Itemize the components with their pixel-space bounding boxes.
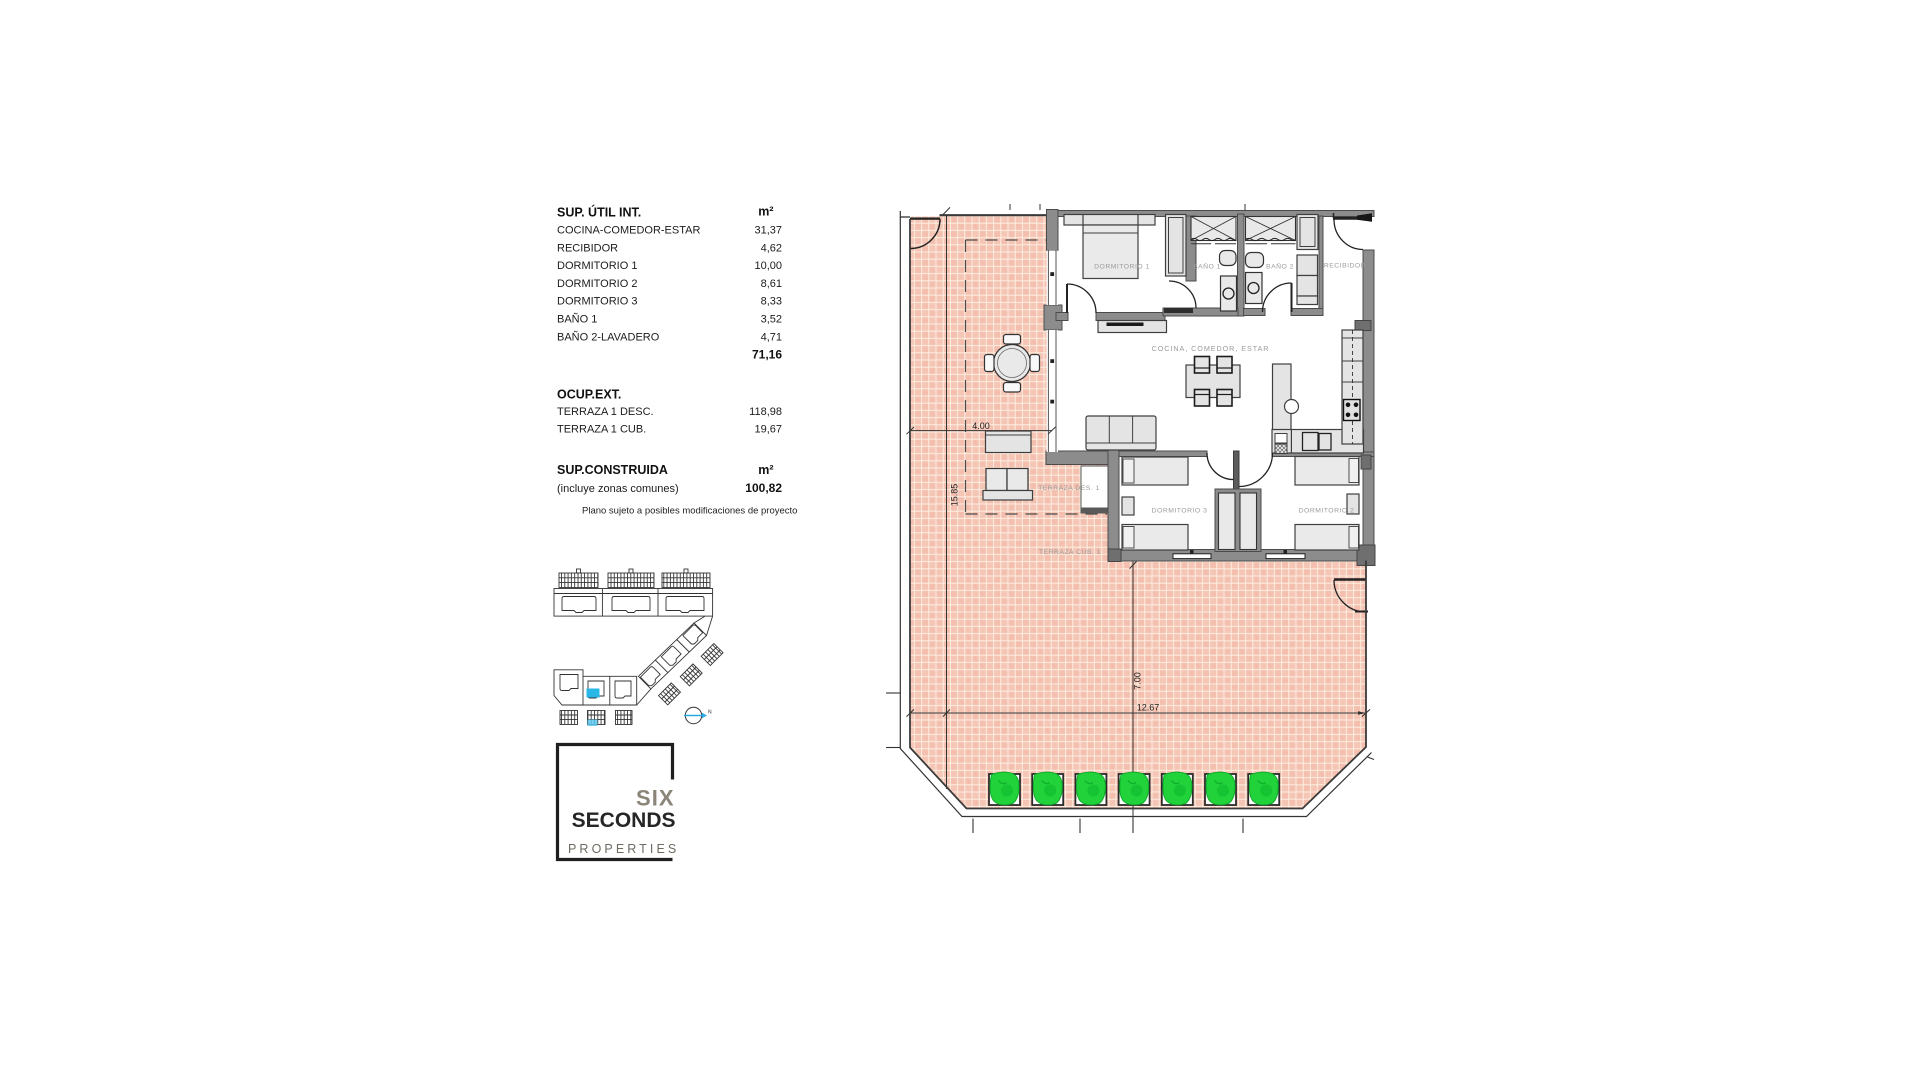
- svg-text:TERRAZA 1 CUB.: TERRAZA 1 CUB.: [557, 424, 646, 436]
- svg-text:4.00: 4.00: [972, 421, 990, 431]
- svg-text:8,33: 8,33: [761, 296, 782, 308]
- svg-text:BAÑO 1: BAÑO 1: [557, 313, 597, 326]
- svg-text:SECONDS: SECONDS: [572, 809, 676, 832]
- svg-text:SIX: SIX: [636, 786, 674, 811]
- svg-text:DORMITORIO 2: DORMITORIO 2: [557, 278, 637, 290]
- svg-text:SUP. ÚTIL INT.: SUP. ÚTIL INT.: [557, 205, 641, 220]
- svg-text:10,00: 10,00: [754, 260, 782, 272]
- svg-text:DORMITORIO 2: DORMITORIO 2: [1299, 508, 1355, 515]
- svg-text:m²: m²: [758, 205, 773, 219]
- svg-text:15.85: 15.85: [950, 484, 960, 507]
- svg-text:RECIBIDOR: RECIBIDOR: [557, 242, 618, 254]
- svg-text:m²: m²: [758, 463, 773, 477]
- svg-text:118,98: 118,98: [749, 406, 782, 418]
- svg-text:71,16: 71,16: [752, 348, 782, 362]
- svg-text:DORMITORIO 1: DORMITORIO 1: [557, 260, 637, 272]
- svg-text:4,71: 4,71: [761, 331, 782, 343]
- svg-text:TERRAZA CUB. 1: TERRAZA CUB. 1: [1039, 549, 1101, 556]
- svg-text:OCUP.EXT.: OCUP.EXT.: [557, 388, 621, 402]
- svg-text:4,62: 4,62: [761, 242, 782, 254]
- svg-text:TERRAZA 1 DESC.: TERRAZA 1 DESC.: [557, 406, 654, 418]
- svg-text:PROPERTIES: PROPERTIES: [568, 842, 679, 856]
- svg-text:12.67: 12.67: [1137, 703, 1160, 713]
- svg-text:7.00: 7.00: [1133, 672, 1143, 690]
- svg-text:COCINA-COMEDOR-ESTAR: COCINA-COMEDOR-ESTAR: [557, 225, 700, 237]
- svg-text:19,67: 19,67: [754, 424, 782, 436]
- svg-text:BAÑO 1: BAÑO 1: [1193, 262, 1221, 271]
- svg-text:DORMITORIO 1: DORMITORIO 1: [1094, 264, 1150, 271]
- svg-text:N: N: [708, 710, 712, 716]
- svg-text:RECIBIDOR: RECIBIDOR: [1324, 263, 1366, 270]
- svg-text:31,37: 31,37: [754, 225, 782, 237]
- svg-text:SUP.CONSTRUIDA: SUP.CONSTRUIDA: [557, 463, 668, 477]
- svg-text:8,61: 8,61: [761, 278, 782, 290]
- svg-text:Plano sujeto a posibles modifi: Plano sujeto a posibles modificaciones d…: [582, 506, 797, 517]
- svg-text:BAÑO 2-LAVADERO: BAÑO 2-LAVADERO: [557, 330, 660, 343]
- svg-text:(incluye zonas comunes): (incluye zonas comunes): [557, 483, 679, 495]
- svg-text:BAÑO 2: BAÑO 2: [1266, 262, 1294, 271]
- svg-text:3,52: 3,52: [761, 314, 782, 326]
- svg-text:100,82: 100,82: [745, 481, 782, 495]
- svg-text:COCINA, COMEDOR, ESTAR: COCINA, COMEDOR, ESTAR: [1152, 344, 1270, 353]
- svg-text:TERRAZA DES. 1: TERRAZA DES. 1: [1038, 485, 1100, 492]
- svg-text:DORMITORIO 3: DORMITORIO 3: [1152, 508, 1208, 515]
- svg-text:DORMITORIO 3: DORMITORIO 3: [557, 296, 637, 308]
